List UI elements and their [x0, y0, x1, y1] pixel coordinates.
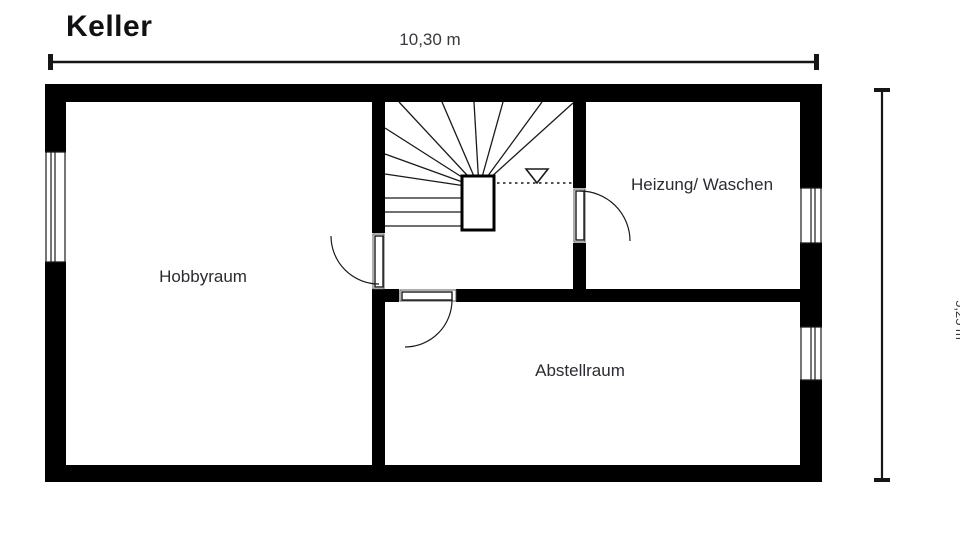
- door-swing-arc: [580, 191, 630, 241]
- stair-core: [462, 176, 494, 230]
- wall-hobby-upper: [372, 102, 385, 233]
- wall-left-lower: [45, 262, 66, 482]
- room-label-hobbyraum: Hobbyraum: [128, 267, 278, 287]
- door-swing-arc: [331, 236, 379, 284]
- room-label-heizung-waschen: Heizung/ Waschen: [618, 175, 786, 195]
- window-left: [45, 152, 66, 262]
- dimension-line-vertical: [874, 88, 890, 482]
- dimension-cap-right: [814, 54, 819, 70]
- door-heizung: [574, 189, 630, 242]
- dimension-cap-bottom: [874, 478, 890, 482]
- door-hobbyraum: [331, 234, 384, 289]
- interior-walls: [372, 102, 800, 465]
- wall-hobby-lower: [372, 290, 385, 465]
- wall-right-middle: [800, 243, 822, 327]
- dimension-cap-top: [874, 88, 890, 92]
- wall-right-lower: [800, 380, 822, 482]
- window-right-upper: [800, 188, 822, 243]
- wall-heizung-upper: [573, 102, 586, 188]
- wall-abstell-left: [372, 289, 399, 302]
- dimension-cap-left: [48, 54, 53, 70]
- wall-bottom: [45, 465, 822, 482]
- staircase: [385, 102, 573, 230]
- wall-left-upper: [45, 84, 66, 152]
- room-label-abstellraum: Abstellraum: [502, 361, 658, 381]
- page-title: Keller: [66, 10, 152, 44]
- floorplan-page: { "title": "Keller", "dimensions": { "wi…: [0, 0, 960, 541]
- dimension-width-label: 10,30 m: [380, 30, 480, 50]
- wall-top: [45, 84, 822, 102]
- stair-direction-icon: [526, 169, 548, 183]
- door-abstellraum: [400, 290, 456, 347]
- wall-abstell-right: [456, 289, 800, 302]
- dimension-height-label: 5,25 m: [953, 265, 960, 375]
- dimension-line-horizontal: [48, 54, 819, 70]
- wall-right-upper: [800, 84, 822, 188]
- window-right-lower: [800, 327, 822, 380]
- door-swing-arc: [405, 300, 452, 347]
